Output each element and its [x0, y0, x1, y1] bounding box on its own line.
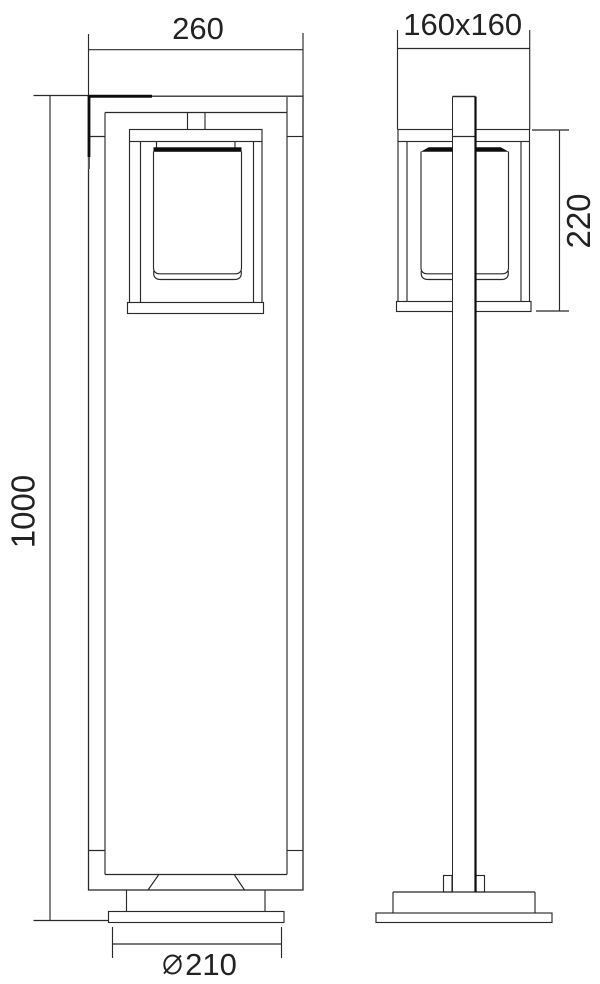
svg-text:220: 220	[560, 193, 597, 248]
svg-text:210: 210	[185, 947, 237, 982]
svg-text:260: 260	[172, 11, 224, 46]
svg-text:160x160: 160x160	[403, 7, 522, 42]
svg-text:1000: 1000	[5, 475, 42, 548]
